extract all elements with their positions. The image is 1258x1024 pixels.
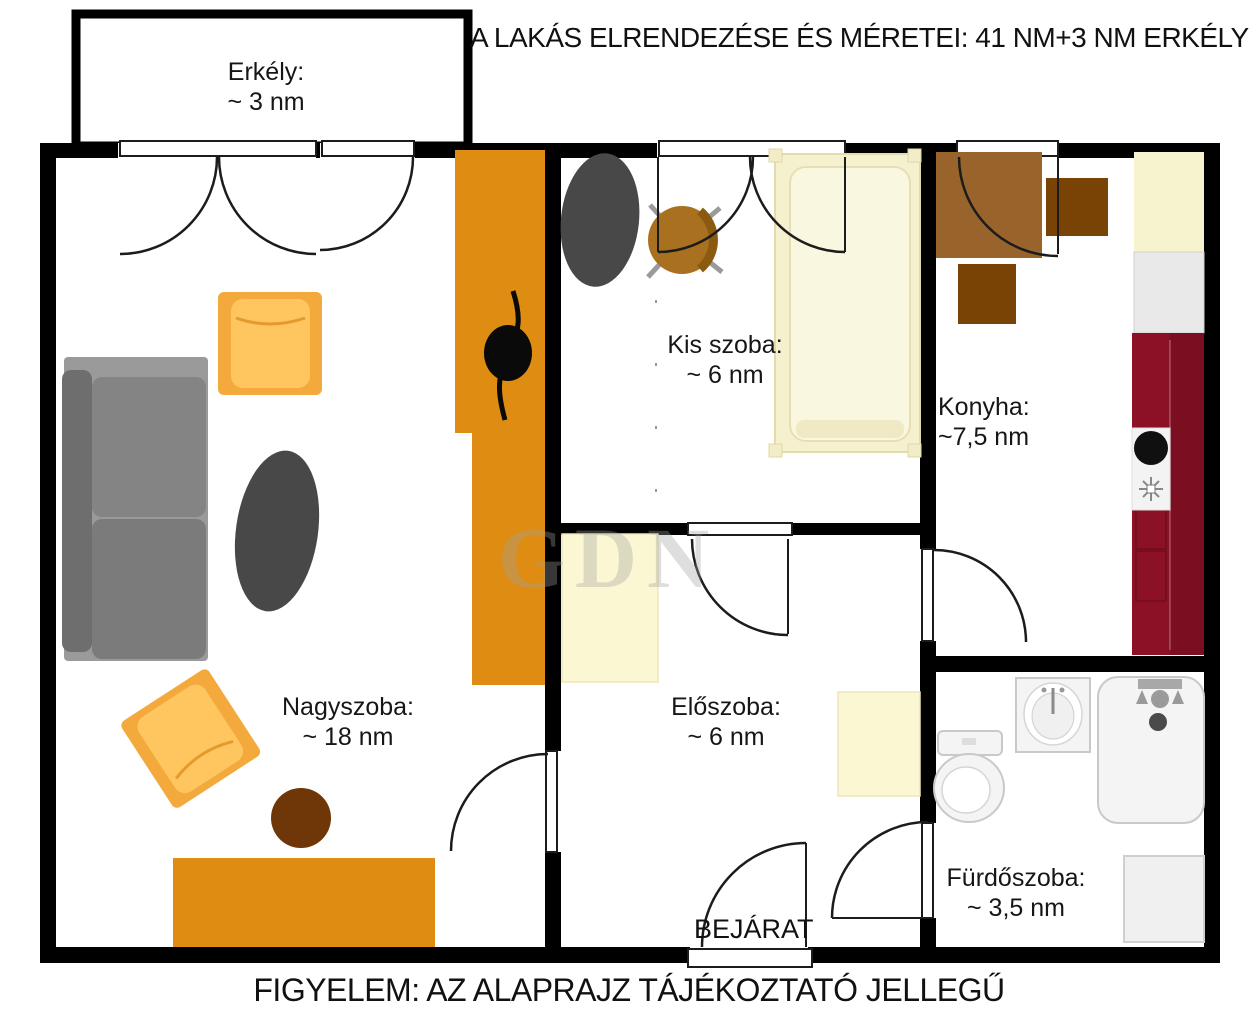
small-room-rug: [554, 149, 646, 290]
armchair-rotated: [119, 667, 262, 810]
kitchen-cabinet: [1134, 152, 1204, 252]
bathroom-area: ~ 3,5 nm: [916, 893, 1116, 923]
label-kitchen: Konyha: ~7,5 nm: [938, 392, 1030, 452]
floor-rug: [225, 445, 329, 617]
balcony-name: Erkély:: [166, 57, 366, 87]
office-chair: [648, 205, 722, 277]
wardrobe: [455, 150, 545, 685]
balcony-area: ~ 3 nm: [166, 87, 366, 117]
kitchen-name: Konyha:: [938, 392, 1030, 422]
living-area: ~ 18 nm: [248, 722, 448, 752]
living-name: Nagyszoba:: [248, 692, 448, 722]
living-room-furniture: [62, 150, 545, 947]
hallway-furniture: [562, 534, 920, 796]
label-bathroom: Fürdőszoba: ~ 3,5 nm: [916, 863, 1116, 923]
stove: [1132, 428, 1170, 510]
label-small-room: Kis szoba: ~ 6 nm: [625, 330, 825, 390]
hallway-area: ~ 6 nm: [626, 722, 826, 752]
fridge: [1134, 252, 1204, 333]
bathroom-name: Fürdőszoba:: [916, 863, 1116, 893]
drain: [1149, 713, 1167, 731]
footer-notice: FIGYELEM: AZ ALAPRAJZ TÁJÉKOZTATÓ JELLEG…: [0, 972, 1258, 1009]
dining-table: [936, 152, 1042, 258]
label-hallway: Előszoba: ~ 6 nm: [626, 692, 826, 752]
small-room-area: ~ 6 nm: [625, 360, 825, 390]
bathtub: [1098, 677, 1204, 823]
desk: [173, 858, 435, 947]
stool: [271, 788, 331, 848]
hall-wardrobe: [562, 534, 658, 682]
small-room-name: Kis szoba:: [625, 330, 825, 360]
hall-rug: [838, 692, 920, 796]
kitchen-chair-1: [1046, 178, 1108, 236]
label-living-room: Nagyszoba: ~ 18 nm: [248, 692, 448, 752]
floor-plan: A LAKÁS ELRENDEZÉSE ÉS MÉRETEI: 41 NM+3 …: [0, 0, 1258, 1024]
label-balcony: Erkély: ~ 3 nm: [166, 57, 366, 117]
sink: [1016, 678, 1090, 752]
toilet: [934, 731, 1004, 822]
washing-machine: [1124, 856, 1204, 942]
sofa: [62, 357, 208, 661]
hallway-name: Előszoba:: [626, 692, 826, 722]
armchair: [218, 292, 322, 395]
plan-title: A LAKÁS ELRENDEZÉSE ÉS MÉRETEI: 41 NM+3 …: [470, 22, 1230, 54]
kitchen-area: ~7,5 nm: [938, 422, 1030, 452]
entrance-label: BEJÁRAT: [694, 914, 814, 945]
kitchen-chair-2: [958, 264, 1016, 324]
